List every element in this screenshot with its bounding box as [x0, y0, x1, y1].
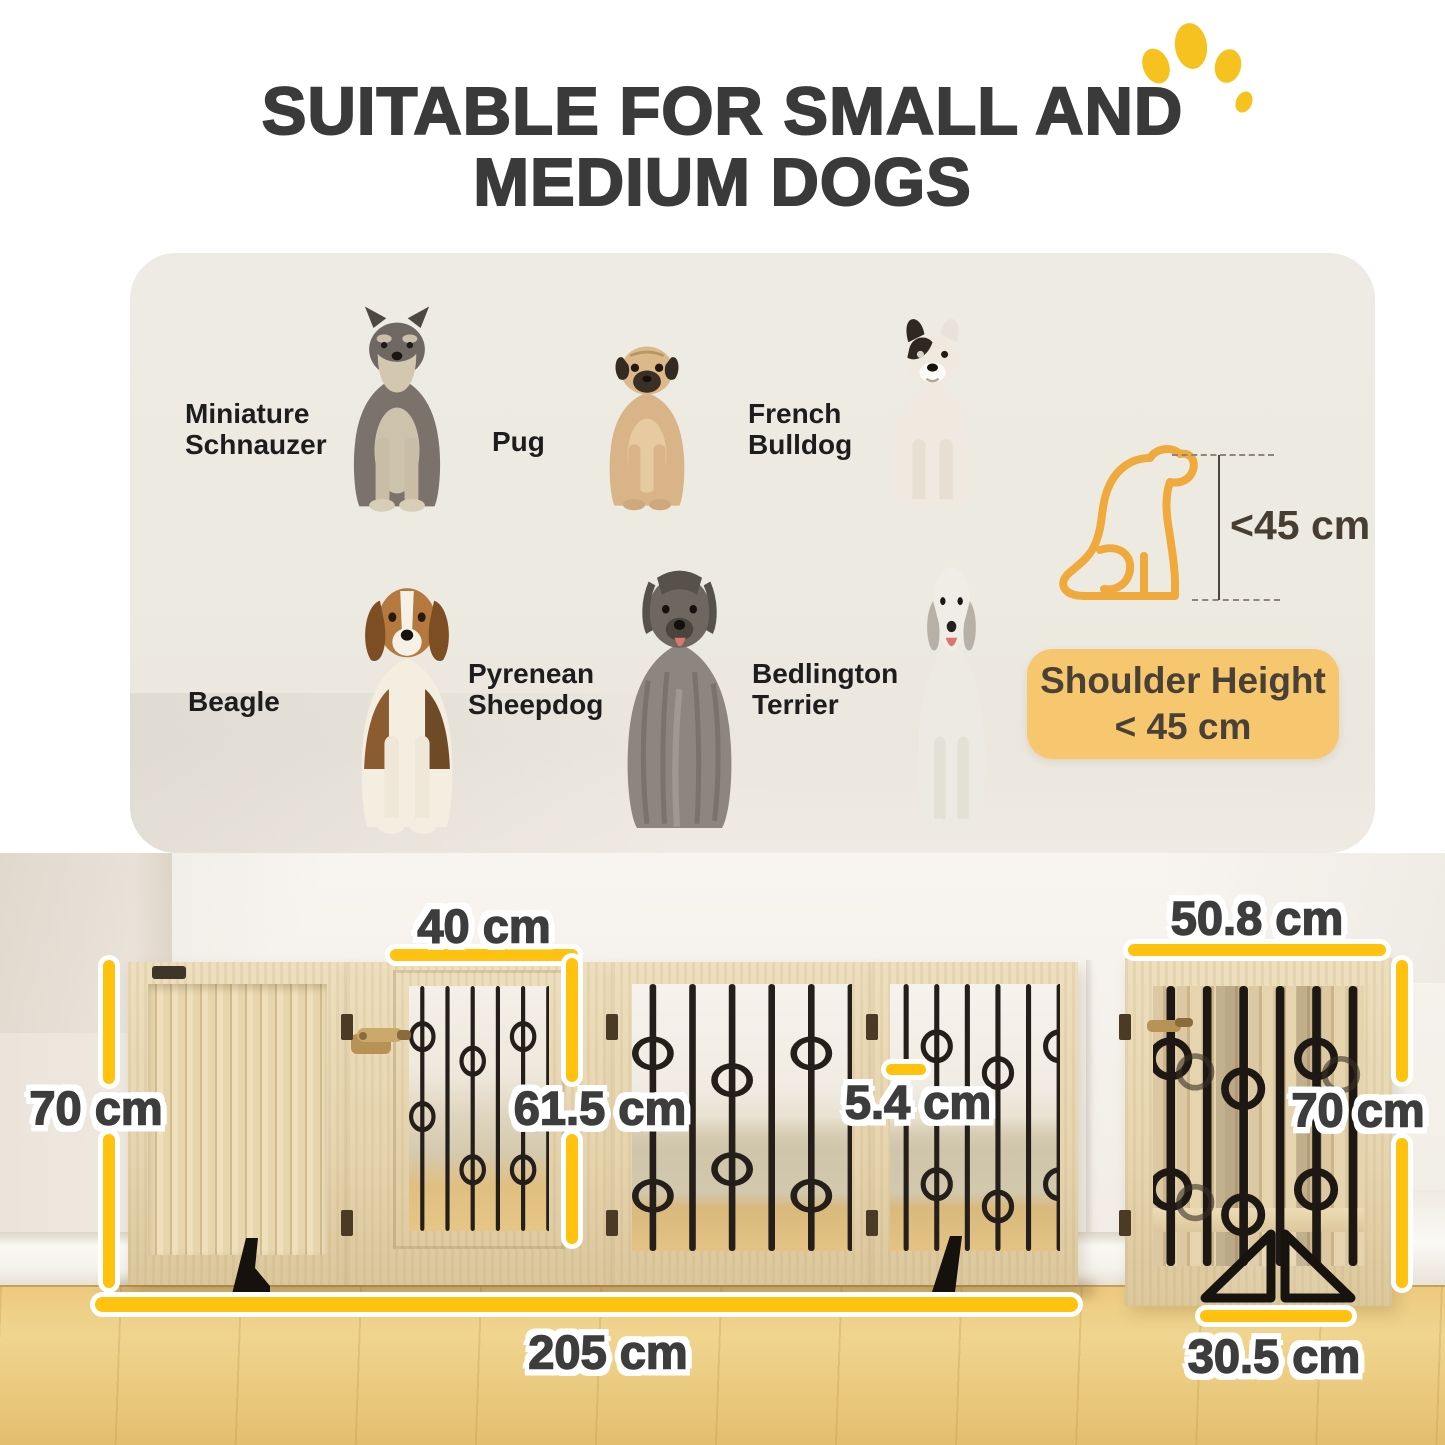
dim-line-height-left-bottom — [103, 1134, 115, 1288]
hinge — [341, 1210, 353, 1236]
dim-line-height-left-top — [103, 960, 115, 1084]
breed-label-french-bulldog: French Bulldog — [748, 398, 858, 461]
breed-label-miniature-schnauzer: Miniature Schnauzer — [185, 398, 325, 461]
pyrenean-sheepdog-photo — [592, 552, 767, 838]
wall-corner — [1086, 960, 1094, 1235]
infographic-root: SUITABLE FOR SMALL AND MEDIUM DOGS Minia… — [0, 0, 1445, 1445]
hinge — [1119, 1014, 1131, 1040]
title-line-2: MEDIUM DOGS — [0, 147, 1445, 218]
height-measure-line — [1218, 455, 1220, 600]
breed-label-pyrenean-sheepdog: Pyrenean Sheepdog — [468, 658, 603, 721]
hinge — [606, 1014, 618, 1040]
triangle-support-feet — [1193, 1224, 1363, 1310]
french-bulldog-photo — [862, 312, 1003, 514]
shoulder-dash-line — [1172, 454, 1274, 456]
badge-line-2: < 45 cm — [1115, 704, 1252, 750]
dim-label-height-right: 70 cm — [1291, 1083, 1424, 1138]
hinge — [341, 1014, 353, 1040]
paw-print-icon — [1138, 16, 1260, 120]
hinge — [866, 1014, 878, 1040]
support-foot — [922, 1232, 974, 1294]
miniature-schnauzer-photo — [322, 300, 472, 515]
beagle-photo — [328, 562, 486, 838]
door-latch — [349, 1020, 415, 1066]
dim-label-foot-depth: 30.5 cm — [1188, 1329, 1360, 1384]
dim-label-panel-width: 50.8 cm — [1171, 891, 1343, 946]
dim-line-total-width — [95, 1297, 1078, 1312]
hinge — [1119, 1210, 1131, 1236]
pug-photo — [582, 328, 712, 513]
dim-tick-bar-gap — [886, 1064, 926, 1075]
dim-line-height-right-top — [1396, 960, 1408, 1082]
dim-line-door-height-top — [566, 958, 578, 1082]
folded-panel-latch — [1145, 1012, 1197, 1038]
slat-infill — [148, 984, 327, 1255]
ground-dash-line — [1192, 599, 1280, 601]
dim-line-door-height-bottom — [566, 1134, 578, 1244]
dim-label-total-width: 205 cm — [528, 1325, 687, 1380]
bedlington-terrier-photo — [884, 556, 1019, 838]
badge-line-1: Shoulder Height — [1040, 658, 1326, 704]
breed-label-beagle: Beagle — [188, 686, 308, 717]
support-foot — [224, 1234, 276, 1296]
dog-height-outline-icon — [1048, 438, 1214, 606]
dim-line-foot-depth — [1200, 1310, 1352, 1322]
shoulder-height-badge: Shoulder Height < 45 cm — [1027, 649, 1339, 759]
dim-label-height-left: 70 cm — [29, 1081, 162, 1136]
dim-label-door-width: 40 cm — [417, 899, 550, 954]
hinge — [606, 1210, 618, 1236]
dim-label-bar-gap: 5.4 cm — [845, 1075, 991, 1130]
dim-line-panel-width — [1128, 944, 1386, 956]
hinge — [866, 1210, 878, 1236]
dim-line-height-right-bottom — [1396, 1138, 1408, 1288]
breed-label-pug: Pug — [492, 426, 582, 457]
height-limit-label: <45 cm — [1230, 502, 1370, 549]
brand-plaque — [152, 966, 186, 979]
breed-label-bedlington-terrier: Bedlington Terrier — [752, 658, 887, 721]
dim-label-door-height: 61.5 cm — [514, 1081, 686, 1136]
